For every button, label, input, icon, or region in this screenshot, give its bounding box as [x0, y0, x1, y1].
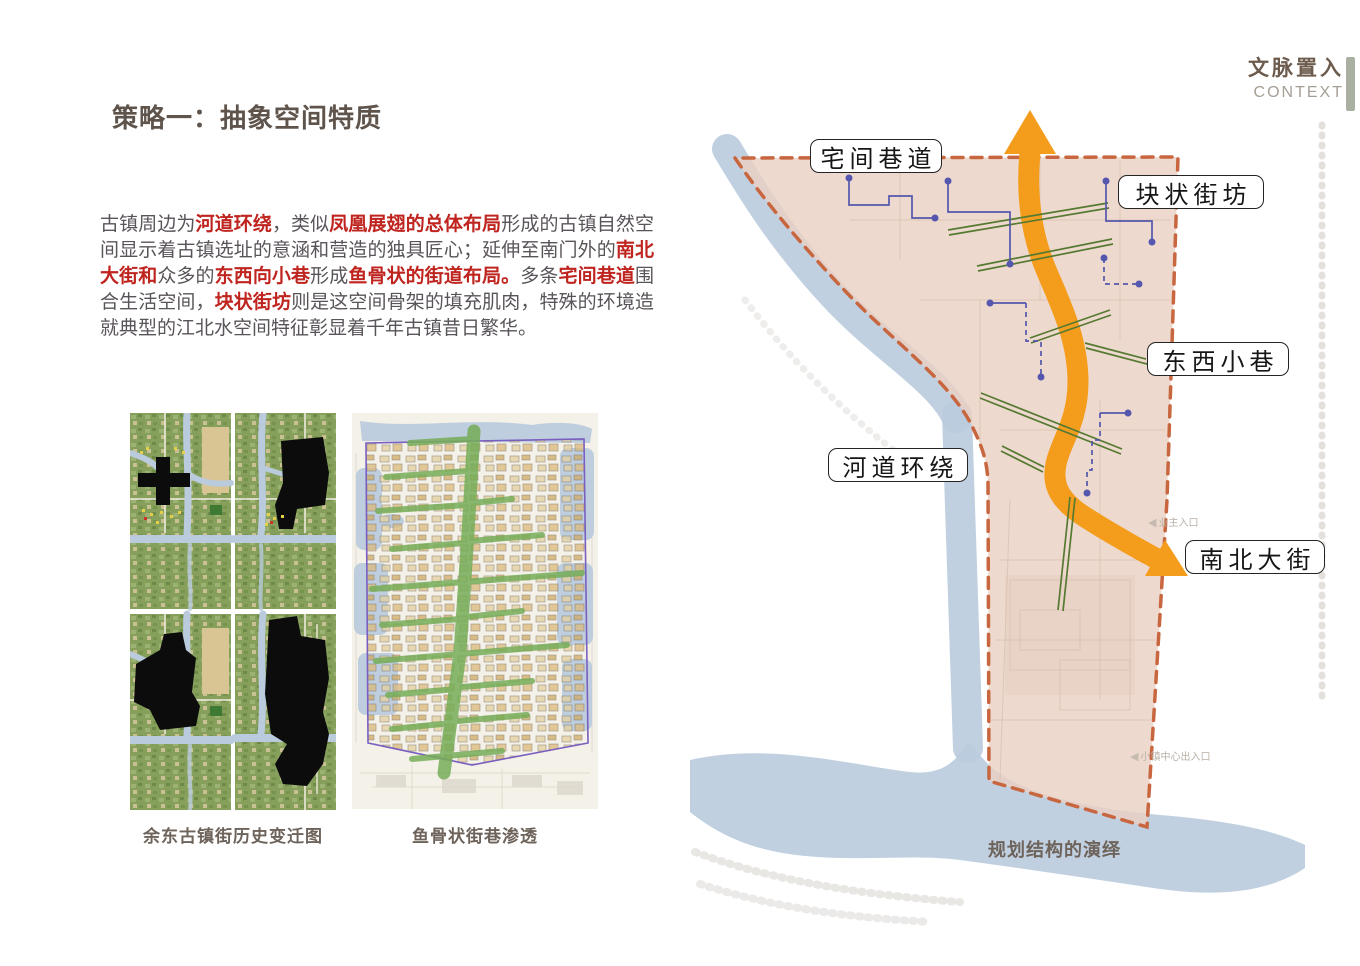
- planning-diagram-svg: [680, 95, 1350, 955]
- entrance-marker-icon: ◀: [1130, 751, 1138, 763]
- planning-diagram: [680, 95, 1350, 955]
- body-text: ，类似: [272, 214, 329, 235]
- page-title: 策略一：抽象空间特质: [112, 98, 382, 135]
- label-house-lanes: 宅间巷道: [810, 139, 942, 173]
- label-north-south-street: 南北大街: [1185, 540, 1325, 574]
- body-paragraph: 古镇周边为河道环绕，类似凤凰展翅的总体布局形成的古镇自然空间显示着古镇选址的意涵…: [100, 212, 654, 342]
- highlight-text: 鱼骨状的街道布局。: [348, 266, 520, 287]
- map-tile-3: [130, 614, 231, 810]
- fishbone-map-caption: 鱼骨状街巷渗透: [352, 822, 598, 847]
- body-text: 古镇周边为: [100, 214, 196, 235]
- map-tile-1: [130, 413, 231, 609]
- fishbone-map-svg: [352, 413, 598, 809]
- body-text: 多条: [520, 266, 558, 287]
- figure-history-maps: [130, 413, 336, 810]
- body-text: 形成: [310, 266, 348, 287]
- arrowhead-up-icon: [1004, 110, 1056, 154]
- highlight-text: 河道环绕: [196, 214, 272, 235]
- highlight-text: 块状街坊: [215, 292, 291, 313]
- label-east-west-alleys: 东西小巷: [1147, 342, 1289, 376]
- section-title-cn: 文脉置入: [1248, 52, 1344, 82]
- figure-fishbone-map: [352, 413, 598, 809]
- label-block-quarters: 块状街坊: [1118, 175, 1264, 209]
- highlight-text: 凤凰展翅的总体布局: [329, 214, 501, 235]
- faint-label-center-entrance: ◀小镇中心出入口: [1130, 748, 1210, 763]
- map-tile-2: [235, 413, 336, 609]
- history-maps-svg: [130, 413, 336, 810]
- presentation-slide: { "header": { "title_cn": "文脉置入", "title…: [0, 0, 1360, 966]
- highlight-text: 东西向小巷: [215, 266, 311, 287]
- history-maps-caption: 余东古镇街历史变迁图: [130, 822, 336, 847]
- entrance-marker-icon: ◀: [1148, 517, 1156, 529]
- map-tile-4: [235, 614, 336, 810]
- label-river-ring: 河道环绕: [828, 448, 968, 482]
- diagram-caption: 规划结构的演绎: [988, 836, 1121, 862]
- body-text: 众多的: [157, 266, 214, 287]
- faint-label-owner-entrance: ◀业主入口: [1148, 514, 1198, 529]
- highlight-text: 宅间巷道: [559, 266, 635, 287]
